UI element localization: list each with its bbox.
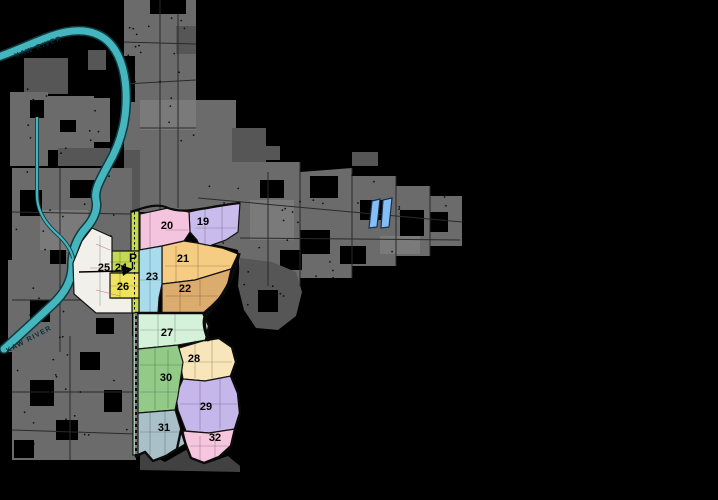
zone-30-label: 30 (160, 372, 172, 384)
zone-32-label: 32 (209, 432, 221, 444)
zone-29-label: 29 (200, 401, 212, 413)
zone-24-strip-lower[interactable] (132, 298, 139, 313)
city-district-map: KAW RIVER KAW RIVER (0, 0, 718, 500)
zone-23-label: 23 (146, 271, 158, 283)
zone-28-label: 28 (188, 353, 200, 365)
map-canvas: KAW RIVER KAW RIVER (0, 0, 718, 500)
zone-21-label: 21 (177, 253, 189, 265)
zone-20-label: 20 (161, 220, 173, 232)
zone-22-label: 22 (179, 283, 191, 295)
p-marker-arrow-line (79, 271, 122, 272)
zone-27-label: 27 (161, 327, 173, 339)
zone-19-label: 19 (197, 216, 209, 228)
p-marker-label: P (129, 251, 137, 265)
zone-26-label: 26 (117, 281, 129, 293)
zone-31-label: 31 (158, 422, 170, 434)
